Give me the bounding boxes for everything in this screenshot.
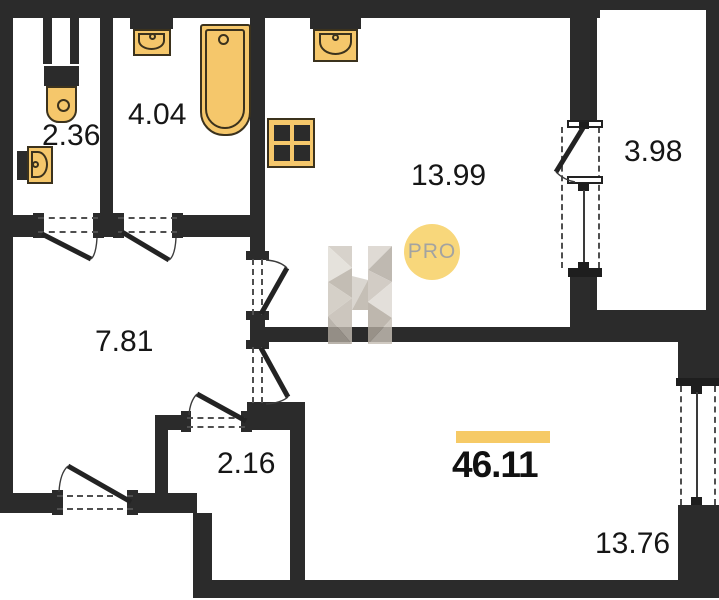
floor-plan: PRO 2.36 4.04 13.99 3.98 7.81 2.16 13.76…	[0, 0, 719, 600]
kitchen-area-label: 13.99	[411, 159, 486, 193]
closet-area-label: 2.16	[217, 447, 275, 481]
total-area-accent-bar	[456, 431, 550, 443]
h-logo-watermark	[328, 246, 392, 344]
pro-badge: PRO	[404, 224, 460, 280]
pro-badge-label: PRO	[408, 240, 457, 264]
balcony-area-label: 3.98	[624, 135, 682, 169]
total-area-label: 46.11	[452, 444, 538, 486]
wc-area-label: 2.36	[42, 119, 100, 153]
bathroom-area-label: 4.04	[128, 98, 186, 132]
hallway-area-label: 7.81	[95, 325, 153, 359]
living-room-area-label: 13.76	[595, 527, 670, 561]
